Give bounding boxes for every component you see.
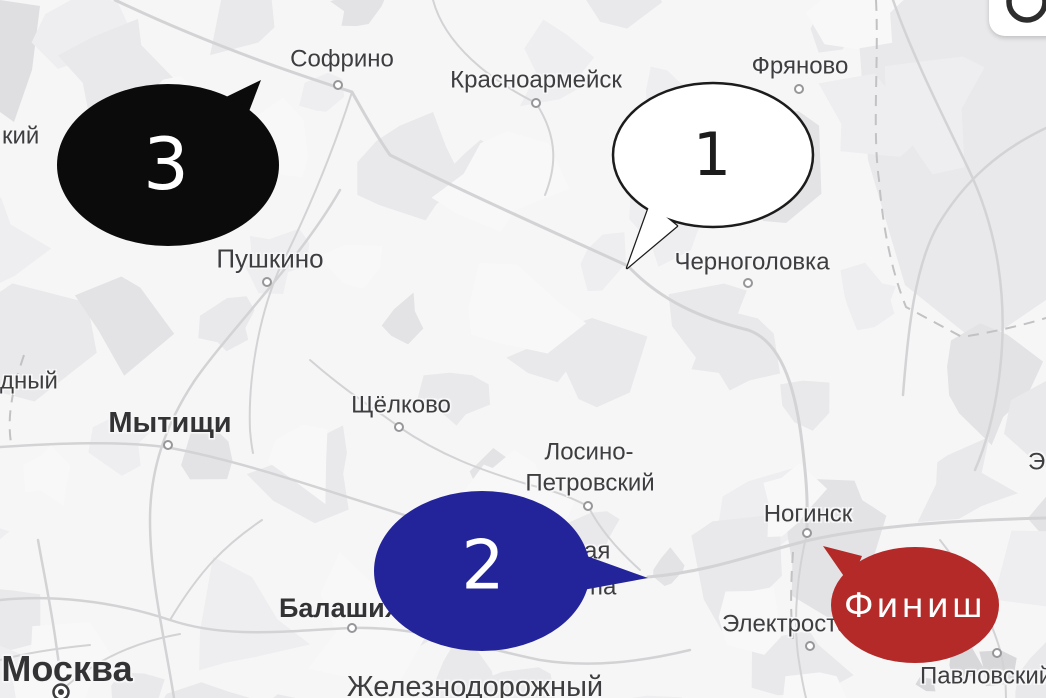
map-control-button[interactable] bbox=[989, 0, 1046, 36]
bubbles-layer: 312Финиш bbox=[0, 0, 1046, 698]
bubble-label: 2 bbox=[461, 527, 504, 606]
speech-bubble-finish[interactable]: Финиш bbox=[823, 546, 999, 663]
bubble-label: Финиш bbox=[844, 586, 986, 626]
speech-bubble-stop-3[interactable]: 3 bbox=[57, 80, 279, 246]
bubble-label: 1 bbox=[693, 120, 731, 190]
bubble-label: 3 bbox=[143, 122, 189, 206]
speech-bubble-stop-2[interactable]: 2 bbox=[374, 491, 648, 651]
map-canvas[interactable]: СофриноКрасноармейскФряновокийПушкиноЧер… bbox=[0, 0, 1046, 698]
circle-ring-icon bbox=[989, 0, 1046, 36]
speech-bubble-stop-1[interactable]: 1 bbox=[613, 83, 813, 268]
